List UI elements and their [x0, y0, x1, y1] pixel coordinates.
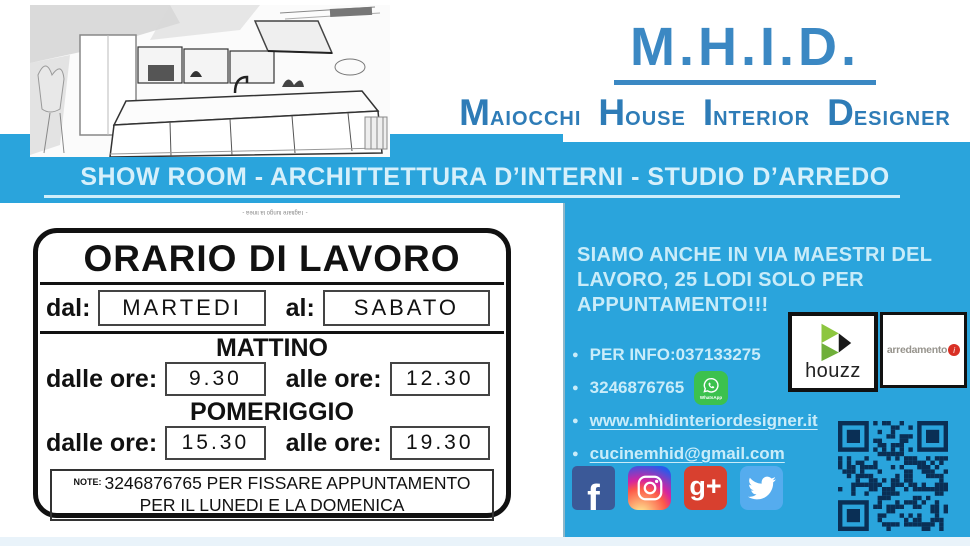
sign-note: NOTE:3246876765 PER FISSARE APPUNTAMENTO…	[50, 469, 494, 521]
houzz-label: houzz	[805, 360, 861, 383]
to-hour-label: alle ore:	[286, 365, 382, 394]
brand-subtitle: MAIOCCHI HOUSE INTERIOR DESIGNER	[498, 92, 912, 134]
announcement: SIAMO ANCHE IN VIA MAESTRI DEL LAVORO, 2…	[577, 243, 947, 318]
instagram-camera-glyph	[635, 473, 665, 503]
afternoon-times-row: dalle ore: 15.30 alle ore: 19.30	[38, 426, 506, 462]
afternoon-label: POMERIGGIO	[38, 398, 506, 426]
from-day-label: dal:	[46, 294, 90, 323]
sign-title: ORARIO DI LAVORO	[38, 233, 506, 282]
bullet-icon: ●	[572, 415, 579, 427]
bottom-strip	[0, 537, 970, 546]
hours-panel: - Tagliare lungo la linea - ORARIO DI LA…	[0, 203, 563, 537]
arredamento-logo[interactable]: arredamento i	[880, 312, 967, 388]
to-day-label: al:	[286, 294, 315, 323]
brand-word: INTERIOR	[703, 92, 810, 134]
morning-to-value: 12.30	[390, 362, 490, 396]
instagram-icon[interactable]	[628, 466, 671, 510]
brand-title: M.H.I.D.	[520, 16, 970, 85]
from-day-value: MARTEDI	[98, 290, 265, 326]
contact-email[interactable]: ● cucinemhid@gmail.com	[572, 443, 818, 465]
morning-times-row: dalle ore: 9.30 alle ore: 12.30	[38, 362, 506, 398]
houzz-logo[interactable]: houzz	[788, 312, 878, 392]
social-icons: f g+	[572, 466, 783, 510]
contact-phone-info: ● PER INFO:037133275	[572, 344, 818, 366]
twitter-icon[interactable]	[740, 466, 783, 510]
morning-from-value: 9.30	[165, 362, 265, 396]
note-text: 3246876765 PER FISSARE APPUNTAMENTO PER …	[104, 473, 470, 515]
announcement-line: SIAMO ANCHE IN VIA MAESTRI DEL	[577, 243, 947, 268]
facebook-icon[interactable]: f	[572, 466, 615, 510]
from-hour-label: dalle ore:	[46, 429, 157, 458]
from-hour-label: dalle ore:	[46, 365, 157, 394]
announcement-line: LAVORO, 25 LODI SOLO PER	[577, 268, 947, 293]
arredamento-label: arredamento	[887, 344, 947, 356]
afternoon-to-value: 19.30	[390, 426, 490, 460]
qr-code[interactable]	[838, 421, 948, 531]
houzz-icon	[810, 321, 856, 363]
brand-word: HOUSE	[598, 92, 685, 134]
bullet-icon: ●	[572, 448, 579, 460]
contact-list: ● PER INFO:037133275 ● 3246876765 WhatsA…	[572, 344, 818, 476]
brand-word: MAIOCCHI	[459, 92, 581, 134]
banner: SHOW ROOM - ARCHITTETTURA D’INTERNI - ST…	[0, 163, 944, 198]
kitchen-sketch-drawing	[30, 5, 390, 157]
brand-title-text: M.H.I.D.	[614, 16, 876, 85]
cut-line-note: - Tagliare lungo la linea -	[165, 209, 385, 215]
contact-website[interactable]: ● www.mhidinteriordesigner.it	[572, 410, 818, 432]
kitchen-sketch-image	[30, 5, 390, 157]
whatsapp-glyph	[700, 376, 722, 396]
whatsapp-icon[interactable]: WhatsApp	[694, 371, 728, 405]
partner-logos: houzz arredamento i	[788, 312, 967, 392]
brand-word: DESIGNER	[827, 92, 951, 134]
morning-label: MATTINO	[38, 334, 506, 362]
contact-whatsapp-number: ● 3246876765 WhatsApp	[572, 377, 818, 399]
afternoon-from-value: 15.30	[165, 426, 265, 460]
arredamento-info-icon: i	[948, 344, 960, 356]
googleplus-icon[interactable]: g+	[684, 466, 727, 510]
note-label: NOTE:	[73, 477, 101, 487]
twitter-bird-glyph	[748, 474, 776, 502]
days-row: dal: MARTEDI al: SABATO	[38, 285, 506, 331]
to-day-value: SABATO	[323, 290, 490, 326]
flyer-page: M.H.I.D. MAIOCCHI HOUSE INTERIOR DESIGNE…	[0, 0, 970, 546]
whatsapp-label: WhatsApp	[700, 395, 722, 400]
to-hour-label: alle ore:	[286, 429, 382, 458]
bullet-icon: ●	[572, 382, 579, 394]
working-hours-sign: ORARIO DI LAVORO dal: MARTEDI al: SABATO…	[33, 228, 511, 518]
bullet-icon: ●	[572, 349, 579, 361]
banner-text: SHOW ROOM - ARCHITTETTURA D’INTERNI - ST…	[44, 163, 899, 198]
